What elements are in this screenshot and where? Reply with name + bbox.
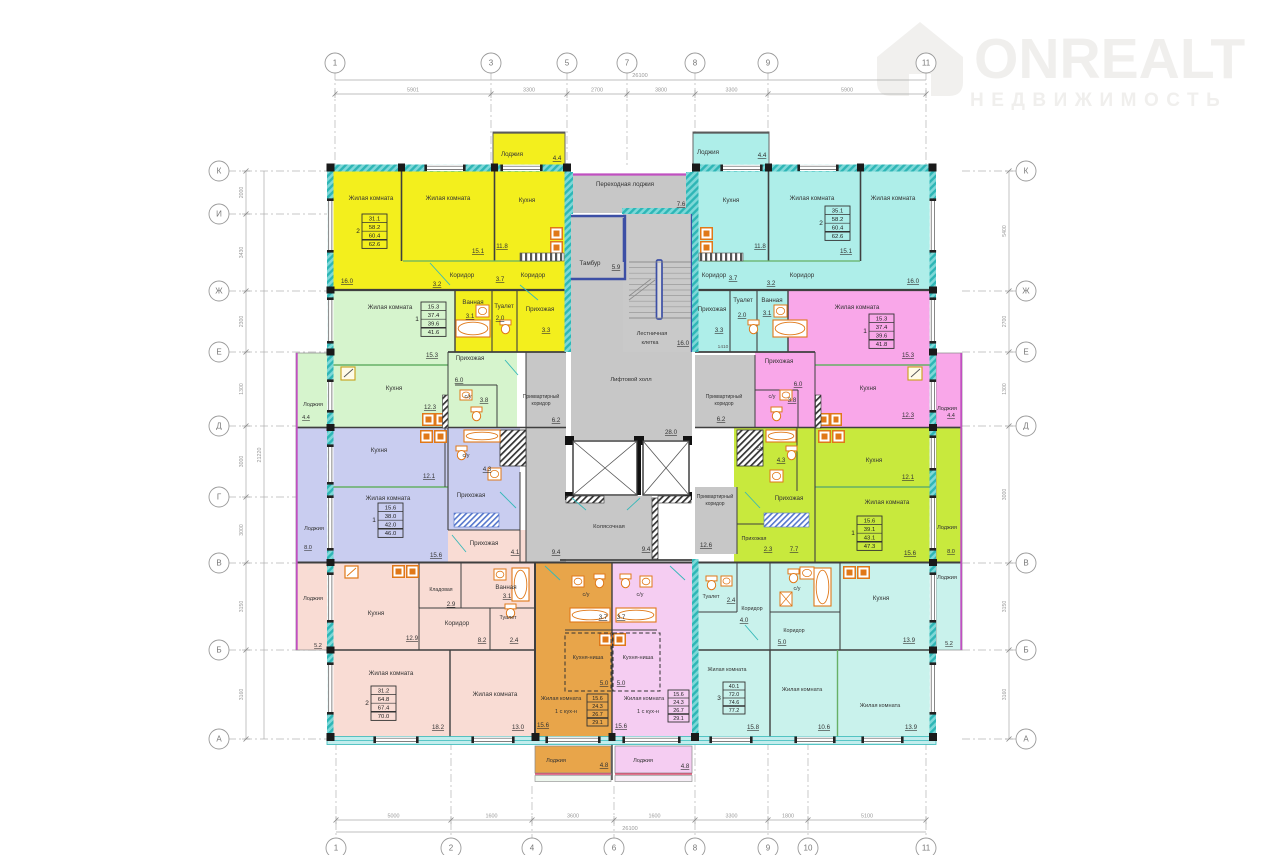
svg-text:Коридор: Коридор [741,606,762,612]
svg-text:3000: 3000 [1002,489,1008,501]
svg-text:2.4: 2.4 [727,597,736,604]
svg-text:3.8: 3.8 [788,397,797,404]
svg-text:10: 10 [804,844,813,853]
svg-text:13.0: 13.0 [512,724,525,731]
svg-text:Жилая комната: Жилая комната [624,696,665,702]
svg-text:с/у: с/у [583,592,590,598]
svg-text:К: К [217,167,222,176]
svg-text:2.0: 2.0 [496,315,505,322]
svg-text:70.0: 70.0 [378,714,390,720]
svg-text:Прихожая: Прихожая [457,492,486,499]
svg-text:Д: Д [1023,422,1029,431]
svg-text:11.8: 11.8 [496,243,508,250]
svg-text:2000: 2000 [239,187,245,199]
svg-text:Жилая комната: Жилая комната [790,195,835,202]
svg-text:62.6: 62.6 [369,242,381,248]
svg-text:8: 8 [693,59,698,68]
svg-text:24.3: 24.3 [673,700,684,706]
svg-text:3160: 3160 [1002,689,1008,701]
svg-text:Жилая комната: Жилая комната [349,195,394,202]
svg-text:12.1: 12.1 [423,473,436,480]
svg-text:12.9: 12.9 [406,635,419,642]
svg-text:коридор: коридор [714,401,733,407]
svg-text:Прихожая: Прихожая [775,495,804,502]
svg-text:3150: 3150 [1002,601,1008,613]
svg-text:2: 2 [365,700,369,707]
svg-text:Лоджия: Лоджия [304,526,324,532]
svg-text:Жилая комната: Жилая комната [426,195,471,202]
svg-text:Прихожая: Прихожая [526,306,555,313]
svg-text:15.6: 15.6 [385,505,397,511]
svg-text:3430: 3430 [239,247,245,259]
svg-text:1: 1 [863,328,867,335]
svg-text:3.2: 3.2 [767,280,776,287]
svg-text:1300: 1300 [239,383,245,395]
svg-text:с/у: с/у [637,592,644,598]
svg-text:ONREALT: ONREALT [974,27,1245,91]
svg-text:5.0: 5.0 [617,680,626,687]
svg-text:6.2: 6.2 [552,417,561,424]
svg-text:4.8: 4.8 [600,762,609,769]
svg-text:3.7: 3.7 [496,276,505,283]
svg-text:с/у: с/у [794,586,801,592]
svg-text:31.1: 31.1 [369,216,380,222]
svg-text:41.6: 41.6 [428,330,440,336]
svg-text:Кухня-ниша: Кухня-ниша [623,655,655,661]
svg-text:5900: 5900 [841,88,853,94]
svg-text:77.2: 77.2 [729,708,740,714]
svg-text:28.0: 28.0 [665,429,678,436]
svg-text:Жилая комната: Жилая комната [541,696,582,702]
svg-text:18.2: 18.2 [432,724,445,731]
svg-text:72.0: 72.0 [729,692,740,698]
svg-text:2: 2 [449,844,454,853]
svg-text:3.3: 3.3 [542,327,551,334]
svg-text:Жилая комната: Жилая комната [366,495,411,502]
svg-text:15.3: 15.3 [428,304,440,310]
svg-text:Жилая комната: Жилая комната [865,499,910,506]
svg-text:А: А [1023,735,1029,744]
svg-text:1: 1 [851,530,855,537]
svg-text:3.7: 3.7 [617,614,626,621]
svg-text:Е: Е [216,348,221,357]
svg-text:16.0: 16.0 [341,278,354,285]
svg-text:1300: 1300 [1002,383,1008,395]
svg-text:Ванная: Ванная [462,299,483,306]
svg-text:3300: 3300 [726,88,738,94]
svg-text:Коридор: Коридор [521,272,546,279]
svg-text:Лоджия: Лоджия [501,151,523,158]
svg-text:1: 1 [415,316,419,323]
svg-text:3.1: 3.1 [503,593,512,600]
svg-text:Приквартирный: Приквартирный [706,393,743,400]
svg-text:8.0: 8.0 [304,545,312,551]
svg-text:12.1: 12.1 [902,474,915,481]
svg-text:А: А [216,735,222,744]
svg-text:Лифтовой холл: Лифтовой холл [610,376,651,383]
svg-text:15.8: 15.8 [747,724,760,731]
svg-text:43.1: 43.1 [864,536,875,542]
svg-text:4.3: 4.3 [777,457,786,464]
svg-text:3300: 3300 [523,88,535,94]
svg-text:1: 1 [372,517,376,524]
svg-text:8.0: 8.0 [947,549,955,555]
svg-text:4.4: 4.4 [758,152,767,159]
svg-text:16.0: 16.0 [677,340,690,347]
svg-text:58.2: 58.2 [832,217,843,223]
svg-text:41.8: 41.8 [876,342,888,348]
svg-text:1800: 1800 [782,814,794,820]
svg-text:16.0: 16.0 [907,278,920,285]
svg-text:Лестничная: Лестничная [637,331,668,337]
svg-text:Колясочная: Колясочная [593,524,625,530]
svg-text:4.0: 4.0 [740,617,749,624]
svg-text:8.2: 8.2 [478,637,487,644]
svg-text:15.3: 15.3 [902,352,915,359]
svg-text:39.1: 39.1 [864,527,875,533]
svg-text:29.1: 29.1 [673,716,684,722]
svg-text:3.3: 3.3 [715,327,724,334]
svg-text:3.1: 3.1 [763,310,772,317]
svg-text:Жилая комната: Жилая комната [835,304,880,311]
svg-text:3160: 3160 [239,689,245,701]
svg-text:Коридор: Коридор [783,628,804,634]
svg-text:Ж: Ж [215,287,223,296]
svg-text:35.1: 35.1 [832,208,843,214]
svg-text:10.6: 10.6 [818,724,831,731]
svg-text:67.4: 67.4 [378,706,390,712]
svg-text:с/у: с/у [757,446,764,452]
svg-text:Кухня: Кухня [368,610,385,617]
svg-text:Е: Е [1023,348,1028,357]
svg-text:5.0: 5.0 [600,680,609,687]
svg-text:Лоджия: Лоджия [937,406,957,412]
svg-text:Ванная: Ванная [761,297,782,304]
svg-text:4.8: 4.8 [681,763,690,770]
svg-text:с/у: с/у [769,394,776,400]
svg-text:Кухня: Кухня [873,595,890,602]
svg-text:9.4: 9.4 [642,546,651,553]
svg-text:Лоджия: Лоджия [546,758,566,764]
svg-text:46.0: 46.0 [385,531,397,537]
svg-text:3000: 3000 [239,456,245,468]
svg-text:2.0: 2.0 [738,312,747,319]
svg-text:3.1: 3.1 [466,313,475,320]
svg-text:3000: 3000 [239,524,245,536]
svg-text:2700: 2700 [1002,316,1008,328]
svg-text:6.0: 6.0 [455,377,464,384]
svg-text:15.6: 15.6 [673,692,684,698]
svg-text:2: 2 [819,220,823,227]
svg-text:12.3: 12.3 [424,404,437,411]
svg-text:Кухня-ниша: Кухня-ниша [573,655,605,661]
svg-text:Лоджия: Лоджия [937,525,957,531]
svg-text:9: 9 [766,59,771,68]
svg-text:11.8: 11.8 [754,243,766,250]
svg-text:42.0: 42.0 [385,523,397,529]
svg-text:коридор: коридор [531,401,550,407]
svg-text:47.3: 47.3 [864,544,876,550]
svg-text:К: К [1024,167,1029,176]
svg-text:3: 3 [717,695,721,702]
svg-text:Приквартирный: Приквартирный [697,493,734,500]
svg-text:Лоджия: Лоджия [633,758,653,764]
svg-text:60.4: 60.4 [369,234,381,240]
svg-text:37.4: 37.4 [876,325,888,331]
svg-text:4.4: 4.4 [947,413,955,419]
svg-text:15.6: 15.6 [904,550,917,557]
svg-text:3: 3 [489,59,494,68]
svg-text:Туалет: Туалет [702,594,720,600]
svg-text:5000: 5000 [388,814,400,820]
svg-text:Кладовая: Кладовая [429,587,452,593]
svg-text:40.1: 40.1 [729,684,740,690]
svg-text:60.4: 60.4 [832,226,844,232]
svg-text:13.9: 13.9 [905,724,918,731]
svg-text:62.6: 62.6 [832,234,844,240]
svg-text:5.0: 5.0 [778,639,787,646]
svg-text:2300: 2300 [239,316,245,328]
svg-text:Прихожая: Прихожая [470,540,499,547]
svg-text:6.2: 6.2 [717,416,726,423]
svg-text:7.7: 7.7 [790,546,799,553]
svg-text:39.6: 39.6 [428,322,440,328]
svg-text:26100: 26100 [632,73,648,79]
svg-text:15.1: 15.1 [840,248,853,255]
svg-text:с/у: с/у [465,394,472,400]
svg-text:с/у: с/у [463,453,470,459]
svg-text:Коридор: Коридор [702,272,727,279]
svg-text:13.9: 13.9 [903,637,916,644]
svg-text:Кухня: Кухня [723,197,740,204]
svg-text:29.1: 29.1 [592,720,603,726]
svg-text:37.4: 37.4 [428,313,440,319]
svg-text:15.3: 15.3 [426,352,439,359]
svg-text:Лоджия: Лоджия [303,402,323,408]
svg-text:4.1: 4.1 [511,549,520,556]
svg-text:клетка: клетка [642,340,660,346]
svg-text:15.6: 15.6 [615,723,628,730]
svg-text:11: 11 [922,59,931,68]
svg-text:6.0: 6.0 [794,381,803,388]
svg-text:Тамбур: Тамбур [580,260,602,267]
svg-text:21220: 21220 [257,448,263,463]
svg-text:2.4: 2.4 [510,637,519,644]
svg-text:Приквартирный: Приквартирный [523,393,560,400]
svg-text:Лоджия: Лоджия [937,575,957,581]
svg-text:Жилая комната: Жилая комната [871,195,916,202]
svg-text:5.2: 5.2 [945,641,953,647]
svg-text:1: 1 [333,59,338,68]
svg-text:5901: 5901 [407,88,419,94]
svg-text:5.2: 5.2 [314,643,322,649]
svg-text:Жилая комната: Жилая комната [473,691,518,698]
svg-text:1: 1 [334,844,339,853]
svg-text:5.9: 5.9 [612,264,621,271]
svg-text:11: 11 [922,844,931,853]
svg-text:Кухня: Кухня [371,447,388,454]
svg-text:Жилая комната: Жилая комната [708,667,747,673]
svg-text:3150: 3150 [239,601,245,613]
svg-text:31.2: 31.2 [378,688,389,694]
svg-text:2700: 2700 [591,88,603,94]
svg-text:12.6: 12.6 [700,542,713,549]
svg-text:Б: Б [216,646,221,655]
svg-text:39.6: 39.6 [876,334,888,340]
svg-text:Ванная: Ванная [495,584,516,591]
svg-text:7: 7 [625,59,630,68]
svg-text:Лоджия: Лоджия [697,149,719,156]
svg-text:3.2: 3.2 [433,281,442,288]
svg-text:1 с кух-н: 1 с кух-н [637,709,659,715]
svg-text:15.3: 15.3 [876,316,888,322]
svg-text:15.6: 15.6 [430,552,443,559]
svg-text:15.6: 15.6 [592,696,603,702]
svg-text:5100: 5100 [861,814,873,820]
svg-text:26.7: 26.7 [673,708,684,714]
svg-text:3.8: 3.8 [480,397,489,404]
svg-text:И: И [216,210,222,219]
svg-text:5400: 5400 [1002,225,1008,237]
svg-text:Кухня: Кухня [860,385,877,392]
svg-text:4.4: 4.4 [553,155,562,162]
svg-text:Кухня: Кухня [386,385,403,392]
svg-text:26100: 26100 [622,826,638,832]
svg-text:2: 2 [356,228,360,235]
svg-text:9.4: 9.4 [552,549,561,556]
svg-text:Прихожая: Прихожая [456,355,485,362]
svg-text:Кухня: Кухня [519,197,536,204]
svg-text:Жилая комната: Жилая комната [369,670,414,677]
svg-text:Б: Б [1023,646,1028,655]
svg-text:3600: 3600 [567,814,579,820]
svg-text:В: В [1023,559,1028,568]
svg-text:3800: 3800 [655,88,667,94]
svg-text:26.7: 26.7 [592,712,603,718]
svg-text:1 с кух-н: 1 с кух-н [555,709,577,715]
svg-text:4.3: 4.3 [483,466,492,473]
svg-text:58.2: 58.2 [369,225,380,231]
svg-text:15.6: 15.6 [537,722,550,729]
svg-text:НЕДВИЖИМОСТЬ: НЕДВИЖИМОСТЬ [970,90,1227,111]
svg-text:Г: Г [217,493,222,502]
svg-text:64.8: 64.8 [378,697,390,703]
svg-text:Жилая комната: Жилая комната [782,687,823,693]
svg-text:Лоджия: Лоджия [303,596,323,602]
svg-text:8: 8 [693,844,698,853]
svg-text:Туалет: Туалет [733,297,753,304]
svg-text:15.1: 15.1 [472,248,485,255]
svg-text:3.7: 3.7 [729,275,738,282]
svg-text:7.6: 7.6 [677,201,686,208]
svg-text:38.0: 38.0 [385,514,397,520]
svg-text:1600: 1600 [486,814,498,820]
svg-text:Жилая комната: Жилая комната [860,703,901,709]
svg-text:Коридор: Коридор [790,272,815,279]
svg-text:1410: 1410 [718,344,729,350]
svg-text:Прихожая: Прихожая [698,306,727,313]
svg-text:6: 6 [612,844,617,853]
svg-text:2.3: 2.3 [764,546,773,553]
svg-text:4: 4 [530,844,535,853]
svg-text:Коридор: Коридор [450,272,475,279]
svg-text:Коридор: Коридор [445,620,470,627]
svg-text:Переходная лоджия: Переходная лоджия [596,181,654,188]
svg-text:24.3: 24.3 [592,704,603,710]
svg-text:Прихожая: Прихожая [742,536,767,542]
svg-text:Кухня: Кухня [866,457,883,464]
svg-text:9: 9 [766,844,771,853]
svg-text:3.7: 3.7 [599,614,608,621]
svg-text:Прихожая: Прихожая [765,358,794,365]
svg-text:Ж: Ж [1022,287,1030,296]
svg-text:2.9: 2.9 [447,601,456,608]
svg-text:12.3: 12.3 [902,412,915,419]
svg-text:В: В [216,559,221,568]
svg-text:коридор: коридор [705,501,724,507]
svg-text:74.6: 74.6 [729,700,740,706]
svg-text:Туалет: Туалет [499,615,517,621]
svg-text:5: 5 [565,59,570,68]
svg-text:Жилая комната: Жилая комната [368,304,413,311]
svg-text:1600: 1600 [649,814,661,820]
svg-text:3300: 3300 [726,814,738,820]
svg-text:4.4: 4.4 [302,415,310,421]
svg-text:15.6: 15.6 [864,518,876,524]
svg-text:Туалет: Туалет [494,303,514,310]
svg-text:Д: Д [216,422,222,431]
